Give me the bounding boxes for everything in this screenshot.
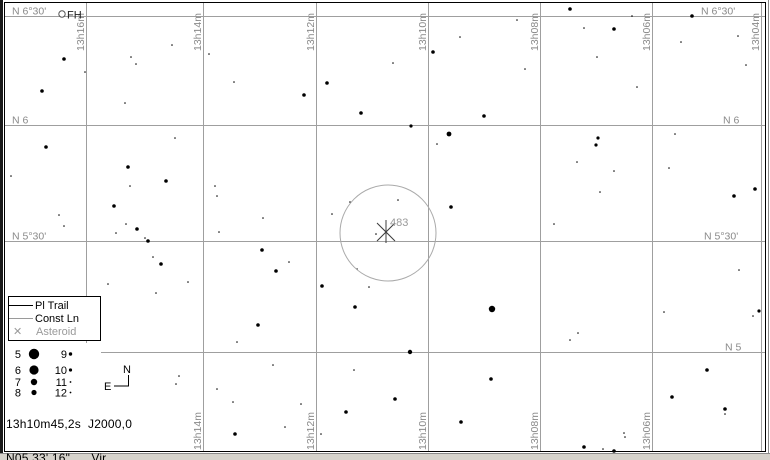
star[interactable]	[232, 401, 234, 403]
star[interactable]	[392, 62, 394, 64]
dec-label-left: N 5°30'	[12, 231, 46, 243]
star[interactable]	[344, 410, 348, 414]
star[interactable]	[256, 323, 260, 327]
legend-row-planet-trail: Pl Trail	[9, 299, 100, 312]
star[interactable]	[44, 145, 48, 149]
star[interactable]	[135, 227, 139, 231]
star[interactable]	[233, 432, 237, 436]
star[interactable]	[553, 223, 555, 225]
magnitude-dot	[70, 392, 72, 394]
star[interactable]	[489, 306, 495, 312]
star[interactable]	[216, 195, 218, 197]
star[interactable]	[331, 213, 333, 215]
star[interactable]	[636, 86, 638, 88]
star[interactable]	[125, 223, 127, 225]
star[interactable]	[375, 233, 377, 235]
star[interactable]	[596, 136, 599, 139]
window-left-edge	[0, 0, 3, 453]
star[interactable]	[368, 286, 370, 288]
star[interactable]	[723, 407, 727, 411]
symbol-legend: Pl Trail Const Ln ✕ Asteroid	[8, 296, 101, 341]
magnitude-label: 9	[61, 349, 67, 361]
magnitude-dot	[69, 352, 72, 355]
star[interactable]	[431, 50, 435, 54]
dec-constellation-readout: N05 33' 16" Vir	[6, 453, 132, 460]
dec-label-right: N 5	[725, 342, 742, 354]
status-readout: 13h10m45,2s J2000,0 N05 33' 16" Vir Alt …	[6, 397, 132, 460]
star[interactable]	[569, 339, 571, 341]
star[interactable]	[409, 124, 412, 127]
star[interactable]	[155, 292, 157, 294]
star[interactable]	[524, 68, 526, 70]
star[interactable]	[732, 194, 736, 198]
star[interactable]	[624, 436, 626, 438]
star[interactable]	[459, 36, 461, 38]
star[interactable]	[63, 225, 65, 227]
star[interactable]	[129, 185, 131, 187]
star[interactable]	[164, 179, 168, 183]
field-marker-label: FH	[67, 10, 82, 22]
star[interactable]	[408, 350, 412, 354]
dec-label-right: N 5°30'	[704, 231, 738, 243]
star[interactable]	[613, 170, 615, 172]
star[interactable]	[320, 284, 324, 288]
star[interactable]	[218, 231, 220, 233]
legend-label-asteroid: Asteroid	[36, 326, 76, 338]
ra-label-top: 13h04m	[750, 13, 762, 51]
target-label: 483	[390, 217, 408, 229]
star[interactable]	[737, 35, 739, 37]
star[interactable]	[449, 205, 453, 209]
ra-label-top: 13h10m	[417, 13, 429, 51]
star[interactable]	[663, 311, 665, 313]
chart-background	[0, 0, 770, 460]
star[interactable]	[144, 237, 146, 239]
star[interactable]	[58, 214, 60, 216]
legend-label-const-ln: Const Ln	[35, 313, 79, 325]
star[interactable]	[623, 432, 625, 434]
dec-label-right: N 6°30'	[701, 6, 735, 18]
star[interactable]	[124, 102, 126, 104]
ra-label-bottom: 13h08m	[529, 412, 541, 450]
dec-label-left: N 6°30'	[12, 6, 46, 18]
star[interactable]	[10, 175, 12, 177]
star[interactable]	[233, 81, 235, 83]
star[interactable]	[171, 44, 173, 46]
star[interactable]	[582, 445, 586, 449]
star[interactable]	[302, 93, 306, 97]
magnitude-dot	[31, 390, 36, 395]
star[interactable]	[668, 167, 670, 169]
star[interactable]	[208, 53, 210, 55]
star[interactable]	[187, 281, 189, 283]
ra-label-bottom: 13h10m	[417, 412, 429, 450]
star[interactable]	[175, 383, 177, 385]
chart-canvas[interactable]: 48313h16m13h14m13h14m13h12m13h12m13h10m1…	[0, 0, 770, 460]
star[interactable]	[594, 143, 597, 146]
star[interactable]	[577, 332, 579, 334]
magnitude-dot	[31, 379, 37, 385]
star[interactable]	[62, 57, 66, 61]
star[interactable]	[705, 368, 709, 372]
star[interactable]	[397, 199, 399, 201]
ra-label-bottom: 13h14m	[192, 412, 204, 450]
star[interactable]	[272, 364, 274, 366]
ra-label-top: 13h06m	[641, 13, 653, 51]
field-marker-icon[interactable]	[59, 11, 65, 17]
star[interactable]	[135, 63, 137, 65]
star[interactable]	[130, 56, 132, 58]
star[interactable]	[146, 239, 150, 243]
star[interactable]	[359, 111, 363, 115]
star[interactable]	[214, 185, 216, 187]
star[interactable]	[284, 426, 286, 428]
star[interactable]	[459, 420, 463, 424]
star[interactable]	[670, 395, 674, 399]
star[interactable]	[174, 137, 176, 139]
ra-readout: 13h10m45,2s J2000,0	[6, 419, 132, 430]
star[interactable]	[274, 269, 278, 273]
star[interactable]	[674, 133, 676, 135]
star[interactable]	[447, 132, 452, 137]
star[interactable]	[320, 433, 322, 435]
magnitude-dot	[29, 349, 39, 359]
star[interactable]	[216, 388, 218, 390]
star[interactable]	[690, 14, 694, 18]
magnitude-label: 6	[15, 365, 21, 377]
star[interactable]	[288, 261, 290, 263]
magnitude-label: 5	[15, 349, 21, 361]
star[interactable]	[126, 165, 130, 169]
planet-trail-line-symbol	[9, 305, 33, 306]
star[interactable]	[236, 341, 238, 343]
magnitude-dot	[29, 365, 38, 374]
star[interactable]	[353, 305, 357, 309]
star[interactable]	[40, 89, 44, 93]
star[interactable]	[516, 19, 518, 21]
legend-label-pl-trail: Pl Trail	[35, 300, 69, 312]
star[interactable]	[576, 161, 578, 163]
star[interactable]	[262, 217, 264, 219]
legend-row-constellation-line: Const Ln	[9, 312, 100, 325]
star[interactable]	[482, 114, 486, 118]
star[interactable]	[159, 262, 163, 266]
star[interactable]	[107, 283, 109, 285]
star[interactable]	[393, 397, 397, 401]
magnitude-dot	[70, 381, 72, 383]
star[interactable]	[260, 248, 264, 252]
magnitude-label: 10	[55, 365, 67, 377]
ra-label-top: 13h14m	[192, 13, 204, 51]
star[interactable]	[753, 187, 757, 191]
star[interactable]	[115, 232, 117, 234]
star[interactable]	[178, 375, 180, 377]
star[interactable]	[602, 448, 604, 450]
ra-label-top: 13h12m	[305, 13, 317, 51]
star[interactable]	[583, 27, 585, 29]
ra-label-bottom: 13h06m	[641, 412, 653, 450]
star[interactable]	[325, 81, 329, 85]
star[interactable]	[489, 377, 493, 381]
star[interactable]	[757, 309, 760, 312]
magnitude-dot	[69, 368, 72, 371]
star[interactable]	[631, 15, 633, 17]
star[interactable]	[152, 256, 154, 258]
star[interactable]	[112, 204, 116, 208]
star[interactable]	[752, 315, 754, 317]
star[interactable]	[84, 71, 86, 73]
star[interactable]	[680, 41, 682, 43]
legend-row-asteroid: ✕ Asteroid	[9, 325, 100, 338]
star-chart-window: 48313h16m13h14m13h14m13h12m13h12m13h10m1…	[0, 0, 770, 460]
compass-east-label: E	[104, 381, 111, 393]
star[interactable]	[300, 403, 302, 405]
star[interactable]	[568, 7, 572, 11]
constellation-line-symbol	[9, 318, 33, 319]
star[interactable]	[738, 269, 740, 271]
ra-label-bottom: 13h12m	[305, 412, 317, 450]
star[interactable]	[599, 191, 601, 193]
star[interactable]	[353, 369, 355, 371]
dec-label-right: N 6	[723, 115, 740, 127]
compass-north-label: N	[123, 364, 131, 376]
dec-label-left: N 6	[12, 115, 29, 127]
star[interactable]	[745, 64, 747, 66]
star[interactable]	[436, 143, 438, 145]
star[interactable]	[724, 413, 726, 415]
asteroid-cross-icon: ✕	[13, 325, 27, 338]
star[interactable]	[612, 27, 616, 31]
ra-label-top: 13h08m	[529, 13, 541, 51]
star[interactable]	[596, 56, 598, 58]
